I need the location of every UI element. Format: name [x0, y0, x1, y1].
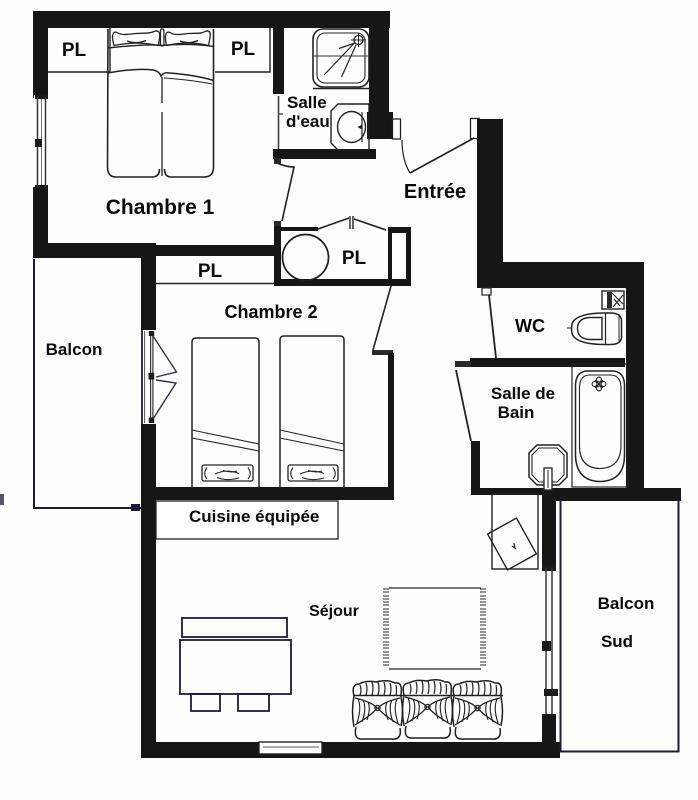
svg-text:PL: PL	[231, 39, 256, 60]
svg-text:Salle: Salle	[287, 93, 327, 112]
svg-text:Balcon: Balcon	[46, 340, 103, 359]
svg-text:Chambre 2: Chambre 2	[224, 302, 317, 322]
svg-text:Sud: Sud	[601, 632, 633, 651]
svg-text:WC: WC	[515, 316, 545, 336]
svg-text:d'eau: d'eau	[286, 112, 330, 131]
svg-text:PL: PL	[198, 261, 223, 282]
svg-text:Cuisine équipée: Cuisine équipée	[189, 507, 319, 526]
svg-text:Salle de: Salle de	[491, 384, 555, 403]
svg-text:PL: PL	[342, 248, 367, 269]
svg-text:Bain: Bain	[498, 403, 535, 422]
svg-text:Chambre 1: Chambre 1	[106, 196, 215, 219]
svg-text:Séjour: Séjour	[309, 603, 359, 620]
svg-text:PL: PL	[62, 40, 87, 61]
svg-text:Balcon: Balcon	[598, 594, 655, 613]
svg-text:Entrée: Entrée	[404, 181, 466, 203]
